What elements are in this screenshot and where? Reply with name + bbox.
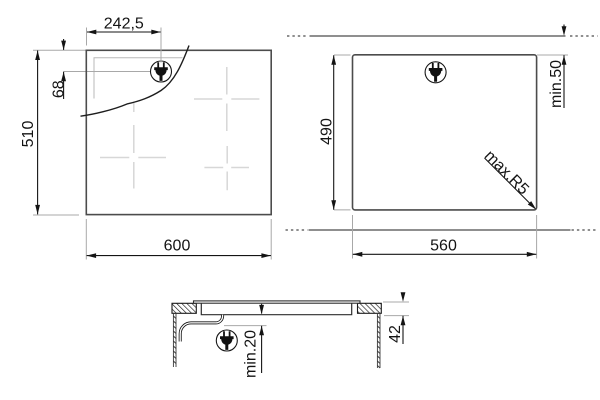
svg-text:600: 600 [164,237,191,254]
svg-text:42: 42 [387,325,404,343]
svg-text:68: 68 [51,80,68,98]
svg-text:max.R5: max.R5 [481,147,532,198]
svg-text:min.20: min.20 [242,330,259,378]
svg-text:560: 560 [430,237,457,254]
svg-text:490: 490 [319,118,336,145]
svg-text:242,5: 242,5 [104,16,144,33]
svg-text:510: 510 [20,121,37,148]
svg-text:min.50: min.50 [548,60,565,108]
